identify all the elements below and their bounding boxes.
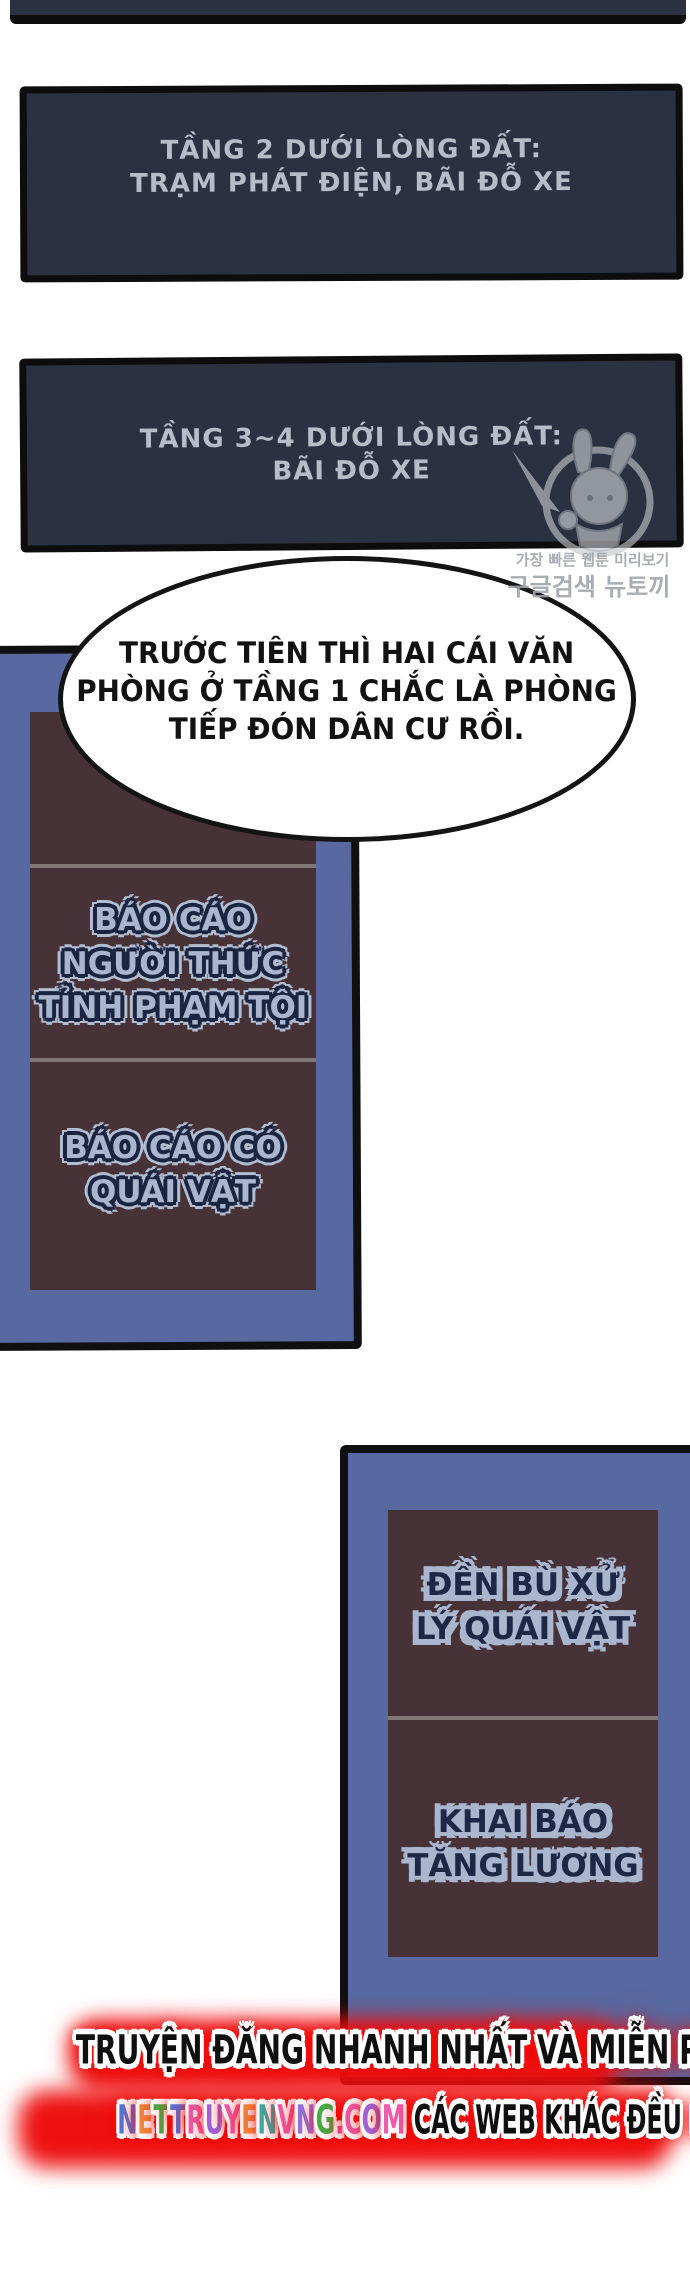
left-board-divider-2: [30, 1058, 316, 1062]
sign-report-awakener-line2: NGƯỜI THỨC: [30, 942, 316, 986]
speech-bubble-line3: TIẾP ĐÓN DÂN CƯ RỒI.: [77, 710, 618, 748]
speech-bubble-line2: PHÒNG Ở TẦNG 1 CHẮC LÀ PHÒNG: [77, 672, 618, 710]
sign-report-monster-line1: BÁO CÁO CÓ: [30, 1126, 316, 1170]
top-panel-sliver: [10, 0, 686, 24]
bunny-mascot-watermark-icon: [498, 420, 688, 558]
panel-floor2: TẦNG 2 DƯỚI LÒNG ĐẤT: TRẠM PHÁT ĐIỆN, BÃ…: [20, 84, 684, 283]
comic-page: TẦNG 2 DƯỚI LÒNG ĐẤT: TRẠM PHÁT ĐIỆN, BÃ…: [0, 0, 690, 2275]
sign-report-awakener-line3: TỈNH PHẠM TỘI: [30, 986, 316, 1030]
sign-report-awakener: BÁO CÁO NGƯỜI THỨC TỈNH PHẠM TỘI: [30, 898, 316, 1030]
right-board-divider: [388, 1716, 658, 1720]
panel-floor2-line2: TRẠM PHÁT ĐIỆN, BÃI ĐỖ XE: [130, 166, 573, 201]
panel-floor2-line1: TẦNG 2 DƯỚI LÒNG ĐẤT:: [130, 133, 573, 168]
footer-promo-line1: TRUYỆN ĐĂNG NHANH NHẤT VÀ MIỄN PHÍ TẠI: [76, 2028, 614, 2074]
footer-promo-line2-text: CÁC WEB KHÁC ĐỀU LÀ ĂN CẮP: [414, 2098, 690, 2144]
sign-monster-compensation: ĐỀN BÙ XỬ LÝ QUÁI VẬT: [388, 1563, 658, 1651]
speech-bubble-line1: TRƯỚC TIÊN THÌ HAI CÁI VĂN: [77, 634, 618, 672]
footer-promo-line1-text: TRUYỆN ĐĂNG NHANH NHẤT VÀ MIỄN PHÍ TẠI: [76, 2028, 690, 2074]
sign-report-awakener-line1: BÁO CÁO: [30, 898, 316, 942]
sign-monster-compensation-line1: ĐỀN BÙ XỬ: [388, 1563, 658, 1607]
sign-salary-report-line1: KHAI BÁO: [388, 1800, 658, 1844]
sign-salary-report-line2: TĂNG LƯƠNG: [388, 1844, 658, 1888]
footer-promo-line2: NETTRUYENVNG.COM CÁC WEB KHÁC ĐỀU LÀ ĂN …: [117, 2098, 572, 2144]
sign-monster-compensation-line2: LÝ QUÁI VẬT: [388, 1607, 658, 1651]
sign-salary-report: KHAI BÁO TĂNG LƯƠNG: [388, 1800, 658, 1888]
sign-report-monster-line2: QUÁI VẬT: [30, 1170, 316, 1214]
footer-site-name: NETTRUYENVNG.COM: [117, 2098, 405, 2144]
watermark-text-line2: 구글검색 뉴토끼: [488, 567, 690, 602]
sign-report-monster: BÁO CÁO CÓ QUÁI VẬT: [30, 1126, 316, 1214]
left-board-divider-1: [30, 864, 316, 868]
